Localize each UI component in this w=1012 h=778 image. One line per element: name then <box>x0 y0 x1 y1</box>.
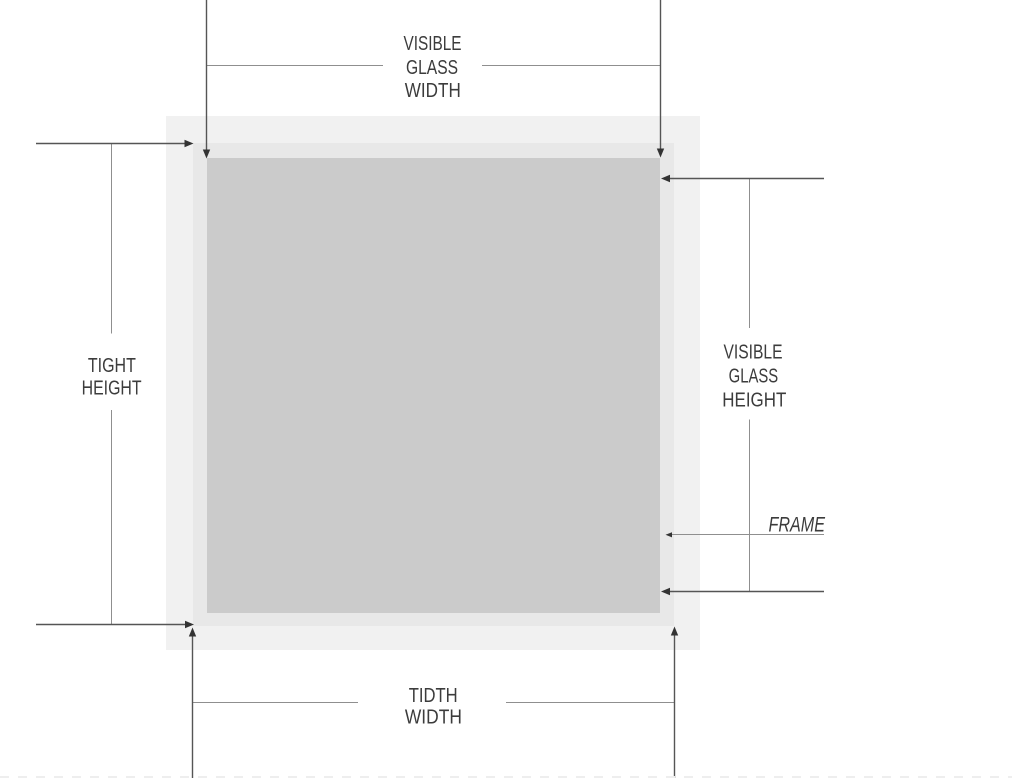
svg-text:HEIGHT: HEIGHT <box>722 390 786 412</box>
svg-text:TIDTH: TIDTH <box>409 685 458 707</box>
svg-text:HEIGHT: HEIGHT <box>82 378 142 400</box>
svg-text:TIGHT: TIGHT <box>88 355 136 377</box>
svg-text:FRAME: FRAME <box>769 514 826 537</box>
svg-text:GLASS: GLASS <box>406 57 458 79</box>
svg-text:WIDTH: WIDTH <box>405 707 462 729</box>
svg-text:VISIBLE: VISIBLE <box>724 342 783 364</box>
svg-text:GLASS: GLASS <box>729 366 779 388</box>
svg-text:VISIBLE: VISIBLE <box>404 33 462 55</box>
svg-text:WIDTH: WIDTH <box>405 80 461 102</box>
